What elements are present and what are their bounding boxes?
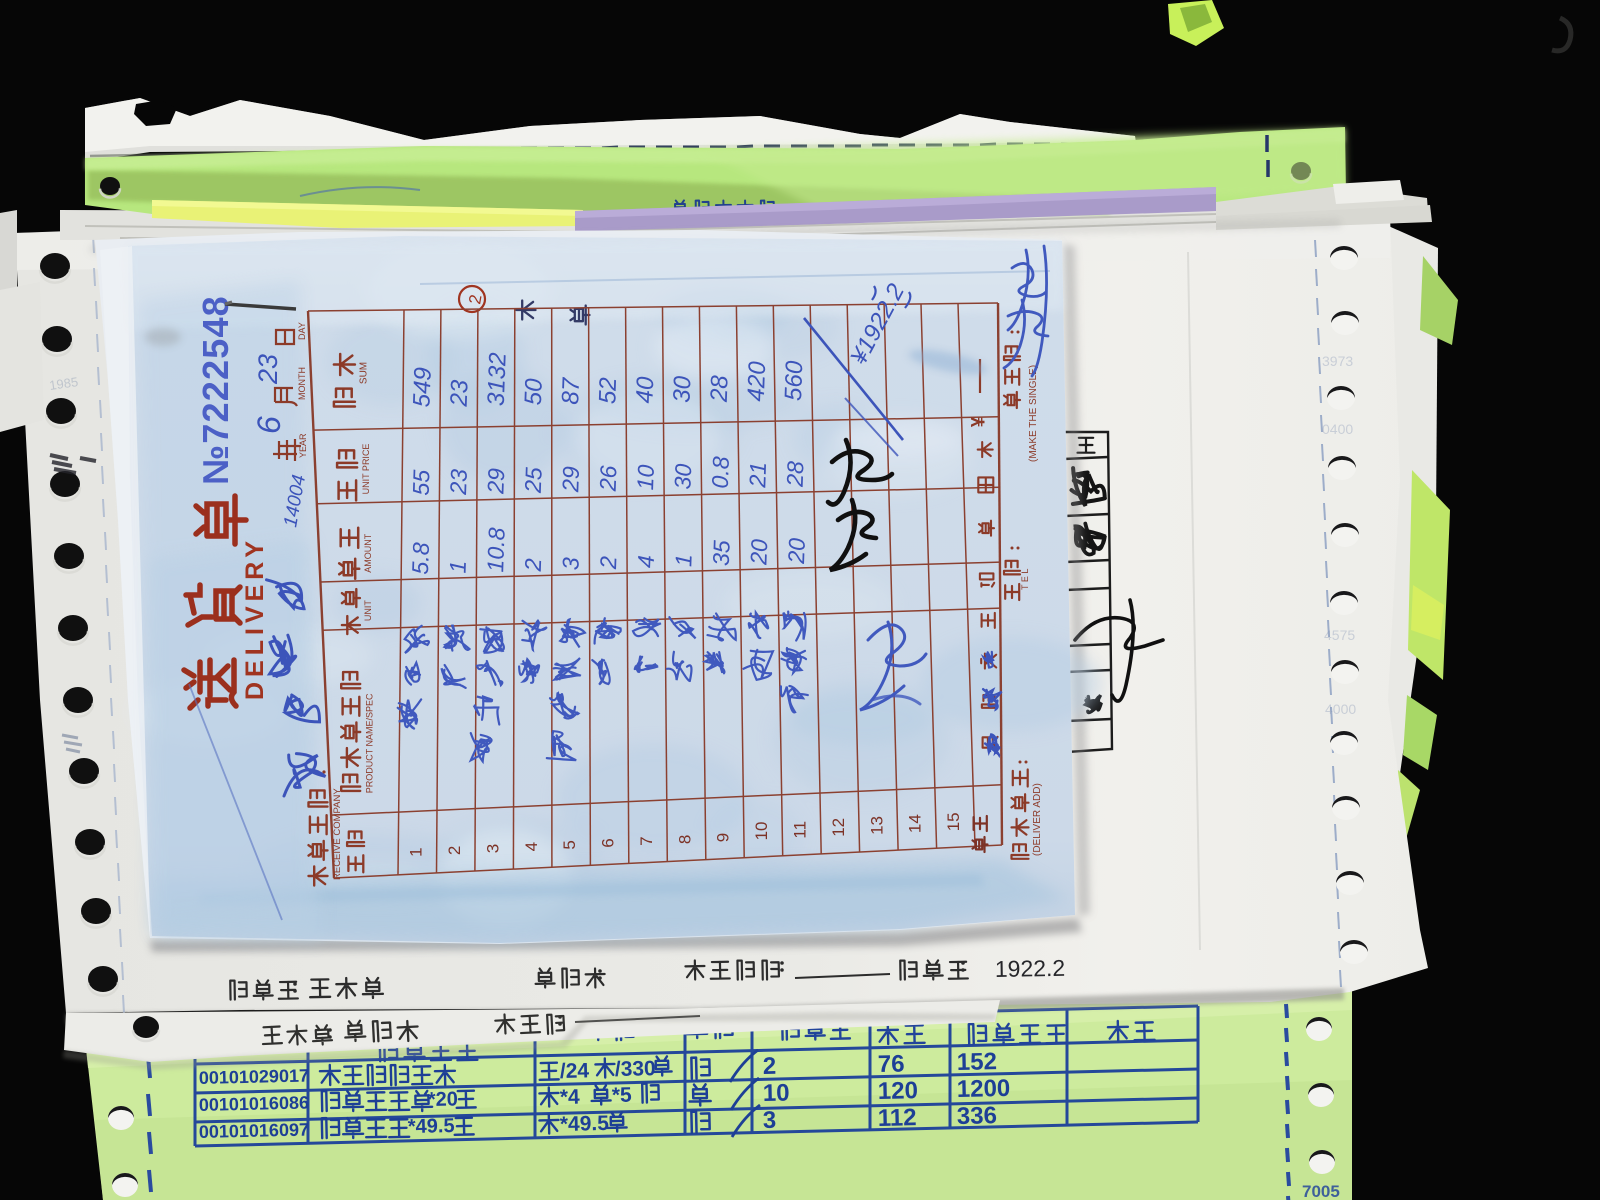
svg-text:SUM: SUM [358,362,369,384]
svg-text:*5: *5 [612,1084,633,1107]
svg-text:112: 112 [878,1104,917,1132]
svg-text:DELIVERY: DELIVERY [241,536,269,700]
svg-text:4575: 4575 [1324,627,1355,643]
svg-text:UNIT PRICE: UNIT PRICE [361,444,371,495]
svg-text:5: 5 [560,840,579,849]
svg-text:20: 20 [745,538,772,566]
svg-text:UNIT: UNIT [363,600,373,621]
svg-text:10: 10 [752,821,771,840]
svg-text:6: 6 [251,416,287,434]
svg-text:*20: *20 [428,1088,459,1111]
svg-text:23: 23 [446,379,474,408]
svg-text:YEAR: YEAR [298,433,308,458]
svg-text:3: 3 [483,844,502,853]
svg-text:8: 8 [675,835,694,844]
svg-text:15: 15 [944,812,963,831]
svg-text:87: 87 [557,376,585,405]
svg-text:1: 1 [407,847,426,856]
svg-text:21: 21 [744,461,771,488]
svg-text:00101016086: 00101016086 [199,1093,310,1115]
svg-text:0400: 0400 [1322,421,1353,437]
svg-text:00101016097: 00101016097 [199,1120,310,1142]
svg-text:13: 13 [867,816,886,835]
svg-text:00101029017: 00101029017 [199,1066,310,1088]
svg-text:10.8: 10.8 [482,527,510,573]
svg-text:7: 7 [637,836,656,845]
svg-text:1: 1 [670,554,696,568]
svg-text:3: 3 [763,1107,777,1134]
svg-text:1: 1 [445,560,471,574]
svg-text:4: 4 [633,555,659,569]
svg-text:T E L: T E L [1020,569,1030,590]
svg-text:7005: 7005 [1302,1182,1340,1200]
svg-text:2: 2 [445,846,464,855]
svg-text:35: 35 [708,540,735,567]
svg-text:RECEIVE COMPANY: RECEIVE COMPANY [332,788,343,880]
svg-text:11: 11 [791,821,810,839]
svg-text:2: 2 [595,556,621,571]
svg-text:28: 28 [706,374,734,403]
svg-text:PRODUCT NAME/SPEC: PRODUCT NAME/SPEC [365,693,375,793]
svg-text:/24: /24 [560,1059,590,1083]
svg-text:336: 336 [957,1102,998,1130]
svg-text:DAY: DAY [297,322,307,340]
svg-text:*49.5: *49.5 [408,1115,455,1138]
svg-text:(MAKE THE SINGLE): (MAKE THE SINGLE) [1028,365,1039,462]
svg-text:549: 549 [408,367,436,408]
svg-text:120: 120 [878,1077,919,1105]
svg-text:14: 14 [906,814,925,833]
svg-text:0.8: 0.8 [707,456,734,489]
svg-text:/330: /330 [615,1057,656,1081]
svg-text:6: 6 [599,838,618,847]
svg-text:20: 20 [783,537,810,565]
svg-text:40: 40 [631,376,659,404]
svg-text:¥: ¥ [968,416,989,427]
svg-text:*4: *4 [560,1086,581,1109]
svg-text:10: 10 [632,464,659,491]
svg-text:2: 2 [520,558,546,573]
svg-text:(DELIVER ADD): (DELIVER ADD) [1032,783,1043,856]
svg-text:55: 55 [408,469,435,496]
svg-text:560: 560 [780,360,808,402]
svg-text:3132: 3132 [483,352,512,406]
svg-text:76: 76 [878,1050,905,1078]
svg-text:4: 4 [522,842,541,851]
svg-text:26: 26 [595,465,622,493]
svg-text:23: 23 [445,468,472,496]
svg-text:25: 25 [520,467,547,495]
svg-text:420: 420 [743,360,771,402]
svg-text:50: 50 [520,377,548,405]
svg-text:5.8: 5.8 [407,542,434,575]
svg-text:3: 3 [557,557,583,571]
svg-text:AMOUNT: AMOUNT [363,533,373,572]
svg-text:10: 10 [763,1079,790,1107]
svg-text:12: 12 [829,818,848,837]
svg-text:MONTH: MONTH [297,367,307,400]
svg-text:28: 28 [782,460,809,488]
svg-text:2: 2 [763,1053,777,1080]
svg-text:№7222548: №7222548 [195,295,236,485]
svg-text:1200: 1200 [957,1075,1011,1103]
svg-text:1922.2: 1922.2 [995,955,1066,982]
svg-text:9: 9 [714,833,733,842]
svg-text:30: 30 [669,463,696,490]
svg-text:*49.5: *49.5 [560,1112,610,1136]
svg-text:29: 29 [482,467,509,495]
svg-text:4000: 4000 [1325,701,1356,717]
svg-text:52: 52 [594,377,622,405]
svg-text:29: 29 [557,466,584,494]
svg-text:152: 152 [957,1048,998,1076]
svg-text:3973: 3973 [1322,353,1353,369]
svg-text:30: 30 [669,375,697,403]
svg-text:23: 23 [253,354,283,385]
